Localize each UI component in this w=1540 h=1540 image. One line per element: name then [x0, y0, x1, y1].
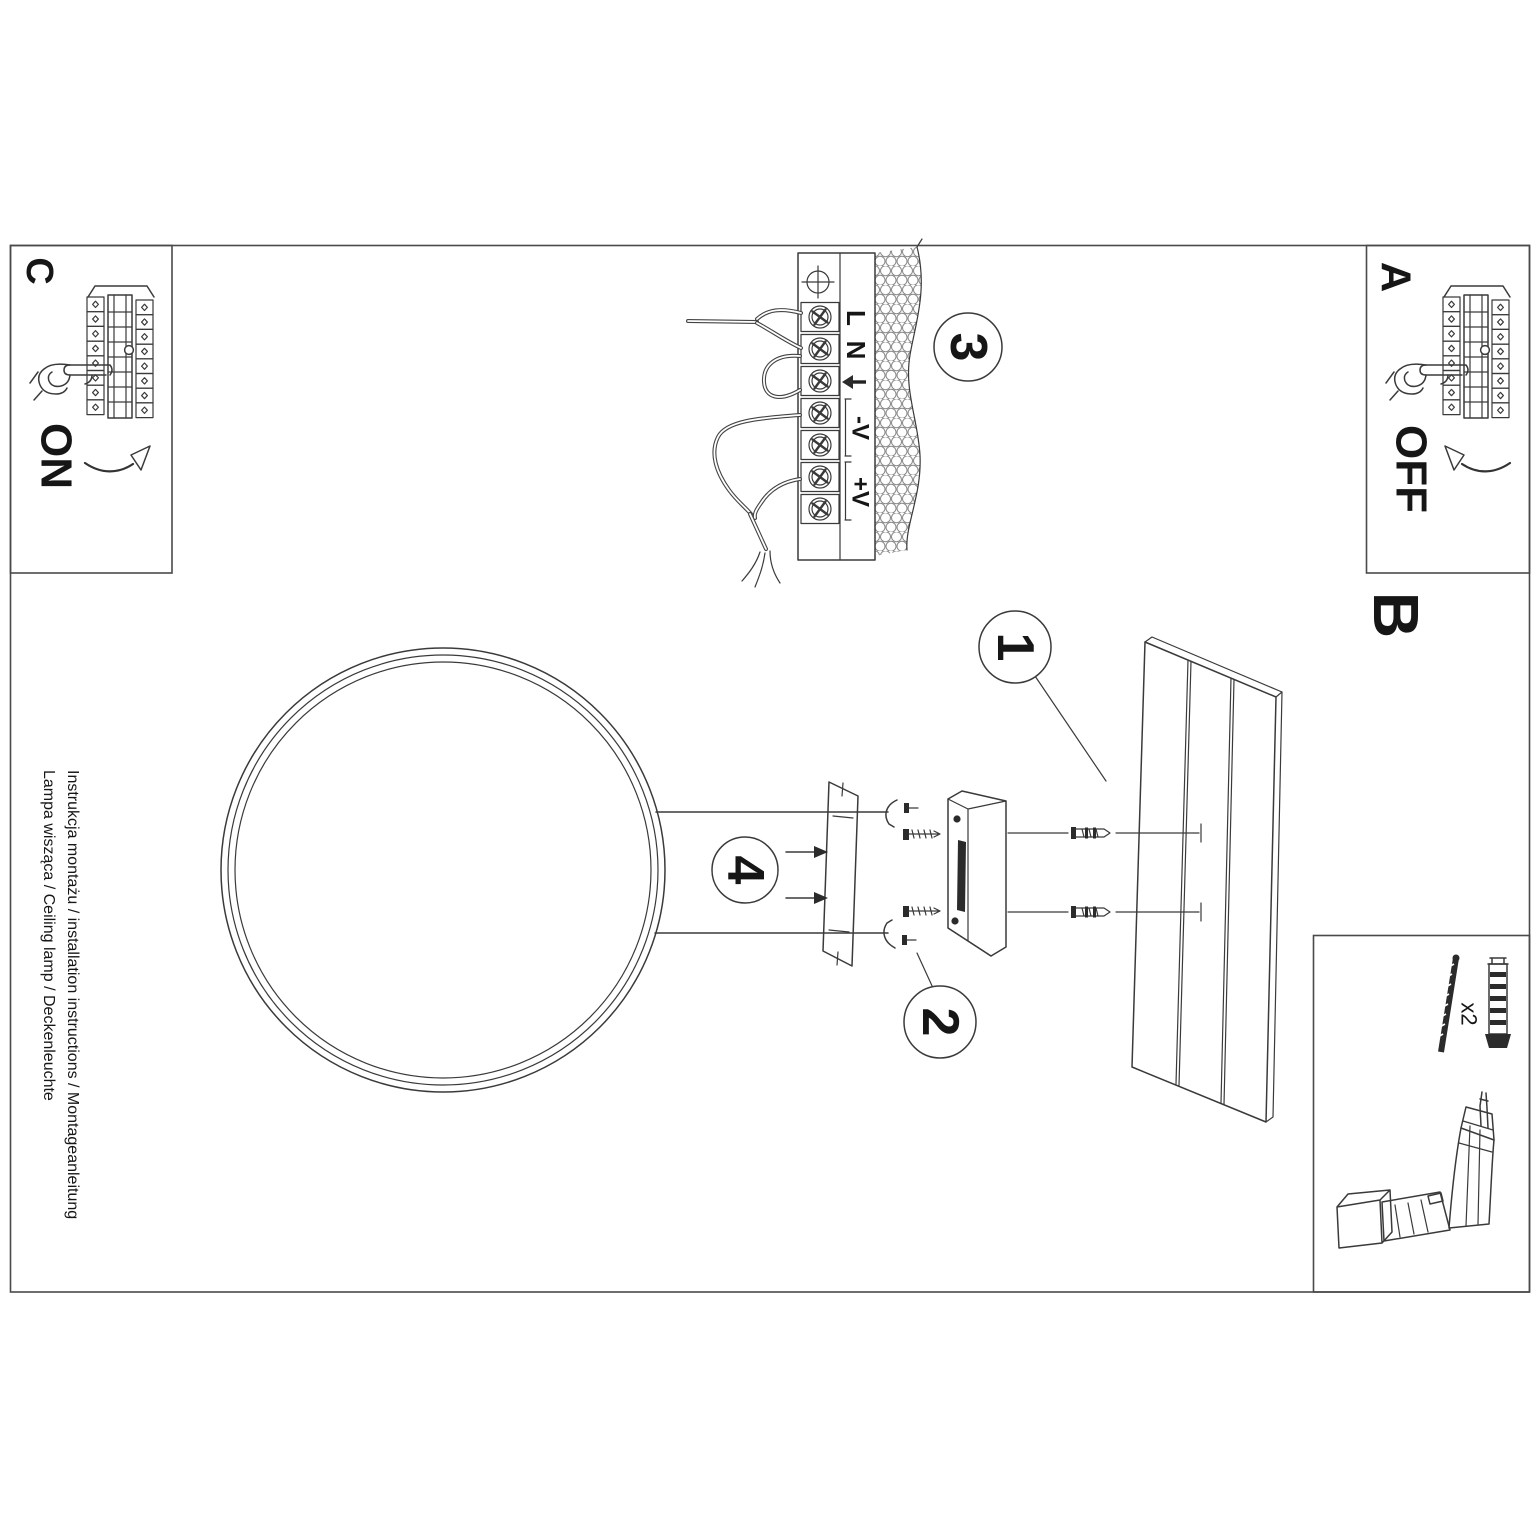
- switch-off-label: OFF: [1387, 425, 1436, 513]
- callout-1-number: 1: [986, 633, 1044, 662]
- pointing-hand-icon: [1386, 364, 1468, 400]
- curved-arrow-on-icon: [85, 446, 150, 471]
- callout-4-number: 4: [716, 856, 774, 885]
- section-c-label: C: [18, 257, 60, 284]
- jumper-wire: [764, 356, 800, 397]
- callout-3-number: 3: [939, 333, 997, 362]
- drill-icon: [1337, 1092, 1494, 1248]
- lamp-ring: [221, 648, 665, 1092]
- ceiling-panel: [1132, 637, 1282, 1122]
- wall-plug-icon: [1485, 958, 1511, 1048]
- instructions-title-line1: Instrukcja montażu / installation instru…: [64, 770, 81, 1219]
- curved-arrow-off-icon: [1445, 446, 1510, 471]
- page-border: [11, 246, 1530, 1293]
- assembly-line: [1008, 824, 1201, 921]
- breaker-off-icon: [1443, 286, 1510, 418]
- ceiling-insulation: [875, 239, 922, 556]
- terminal-l-label: L: [841, 310, 871, 326]
- instruction-sheet: C ON A OFF B 1 2 3 4 L N -V +V x2 Instru…: [0, 0, 1540, 1540]
- terminal-n-label: N: [841, 341, 871, 360]
- fixing-screw-icon: [903, 829, 940, 917]
- mounting-bracket: [823, 782, 858, 966]
- mains-cable: [688, 310, 801, 348]
- wall-anchor-icon: [1071, 827, 1110, 918]
- pointing-hand-icon: [30, 364, 112, 400]
- hook-icon: [884, 800, 897, 948]
- breaker-on-icon: [87, 286, 154, 418]
- section-b-label: B: [1360, 592, 1432, 638]
- canopy-screw-icon: [902, 803, 918, 945]
- terminal-vminus-label: -V: [847, 416, 874, 440]
- terminal-block: [798, 253, 875, 560]
- callout-2-number: 2: [911, 1008, 969, 1037]
- section-a-box: [1367, 246, 1530, 574]
- switch-on-label: ON: [32, 423, 81, 489]
- screw-icon: [1436, 955, 1460, 1053]
- secondary-cable: [714, 415, 800, 587]
- terminal-vplus-label: +V: [847, 477, 874, 507]
- ceiling-canopy: [948, 791, 1006, 956]
- callout-2: [904, 953, 976, 1058]
- section-a-label: A: [1373, 262, 1420, 292]
- diagram-canvas: C ON A OFF B 1 2 3 4 L N -V +V x2 Instru…: [0, 0, 1540, 1540]
- hardware-quantity-label: x2: [1457, 1002, 1482, 1025]
- instructions-title-line2: Lampa wisząca / Ceiling lamp / Deckenleu…: [40, 770, 57, 1101]
- section-c-box: [11, 246, 173, 574]
